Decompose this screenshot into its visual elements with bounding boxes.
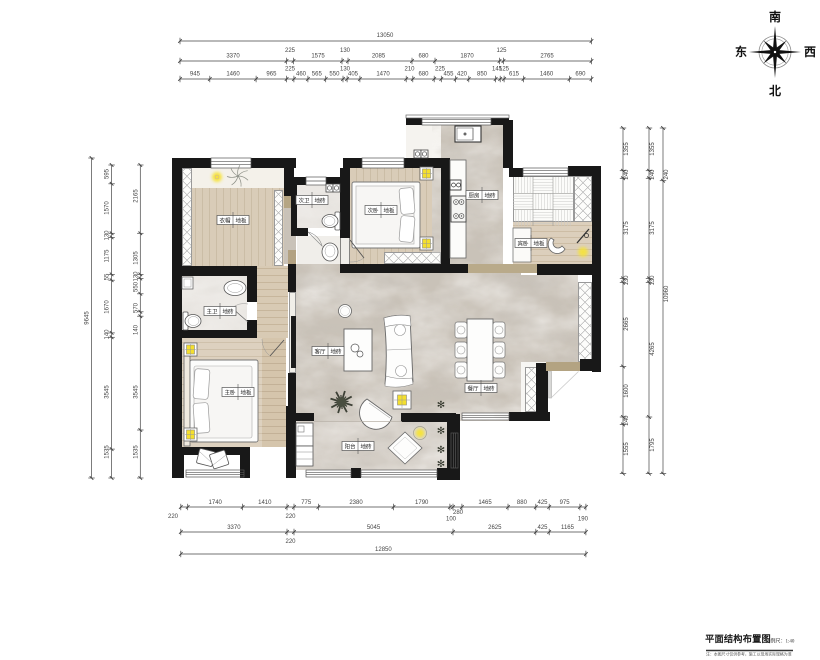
svg-text:550: 550: [133, 281, 139, 292]
svg-text:1175: 1175: [105, 249, 111, 263]
svg-text:主卧: 主卧: [224, 388, 236, 396]
svg-text:220: 220: [285, 514, 296, 520]
svg-text:100: 100: [446, 517, 457, 523]
svg-text:130: 130: [105, 230, 111, 241]
svg-text:460: 460: [296, 72, 307, 78]
svg-text:3370: 3370: [226, 54, 240, 60]
svg-text:北: 北: [769, 83, 781, 98]
svg-text:130: 130: [133, 271, 139, 282]
svg-text:550: 550: [329, 72, 340, 78]
svg-text:4265: 4265: [650, 342, 656, 356]
svg-text:客厅: 客厅: [314, 347, 326, 355]
svg-text:690: 690: [575, 72, 586, 78]
svg-text:地板: 地板: [240, 388, 252, 396]
svg-text:140: 140: [105, 329, 111, 340]
svg-text:12850: 12850: [375, 547, 392, 553]
svg-text:1570: 1570: [105, 201, 111, 215]
svg-text:55: 55: [105, 273, 111, 280]
svg-text:地砖: 地砖: [484, 191, 496, 199]
svg-text:13050: 13050: [377, 33, 394, 39]
svg-text:1410: 1410: [258, 500, 272, 506]
svg-text:✻: ✻: [437, 400, 445, 411]
svg-text:425: 425: [537, 500, 548, 506]
svg-text:280: 280: [453, 510, 464, 516]
svg-text:225: 225: [285, 67, 296, 73]
svg-text:2665: 2665: [624, 317, 630, 331]
svg-text:地砖: 地砖: [222, 307, 234, 315]
svg-text:455: 455: [443, 72, 454, 78]
svg-text:880: 880: [517, 500, 528, 506]
svg-text:地砖: 地砖: [360, 442, 372, 450]
svg-text:190: 190: [578, 517, 589, 523]
svg-text:1535: 1535: [133, 445, 139, 459]
svg-text:宾卧: 宾卧: [517, 239, 529, 247]
svg-text:地砖: 地砖: [483, 384, 495, 392]
svg-text:140: 140: [133, 324, 139, 335]
svg-text:1305: 1305: [133, 251, 139, 265]
svg-text:1555: 1555: [624, 442, 630, 456]
svg-text:680: 680: [418, 72, 429, 78]
svg-text:220: 220: [285, 539, 296, 545]
svg-text:210: 210: [404, 67, 415, 73]
svg-text:1355: 1355: [650, 142, 656, 156]
svg-text:✻: ✻: [437, 459, 445, 470]
svg-text:3545: 3545: [133, 385, 139, 399]
svg-text:衣帽: 衣帽: [219, 216, 231, 224]
svg-text:130: 130: [624, 275, 630, 286]
svg-text:130: 130: [650, 275, 656, 286]
svg-text:西: 西: [804, 45, 816, 59]
svg-text:775: 775: [301, 500, 312, 506]
svg-text:阳台: 阳台: [344, 442, 356, 450]
svg-text:1535: 1535: [105, 445, 111, 459]
svg-text:130: 130: [340, 48, 351, 54]
svg-text:225: 225: [285, 48, 296, 54]
svg-text:615: 615: [509, 72, 520, 78]
svg-text:425: 425: [537, 525, 548, 531]
svg-text:565: 565: [312, 72, 323, 78]
svg-text:240: 240: [664, 169, 670, 180]
svg-text:3175: 3175: [650, 221, 656, 235]
svg-text:东: 东: [735, 44, 747, 59]
svg-text:1870: 1870: [460, 54, 474, 60]
svg-text:次卧: 次卧: [367, 206, 379, 214]
svg-text:1355: 1355: [624, 142, 630, 156]
svg-text:1470: 1470: [376, 72, 390, 78]
svg-text:570: 570: [133, 302, 139, 313]
svg-text:✻: ✻: [437, 426, 445, 437]
svg-text:1670: 1670: [105, 300, 111, 314]
svg-text:地板: 地板: [383, 206, 395, 214]
svg-text:1165: 1165: [561, 525, 575, 531]
svg-text:2765: 2765: [540, 54, 554, 60]
svg-text:地砖: 地砖: [314, 196, 326, 204]
svg-text:地砖: 地砖: [330, 347, 342, 355]
svg-text:680: 680: [418, 54, 429, 60]
svg-text:405: 405: [348, 72, 359, 78]
svg-text:平面结构布置图: 平面结构布置图: [705, 633, 771, 644]
svg-text:2165: 2165: [133, 189, 139, 203]
svg-text:1575: 1575: [311, 54, 325, 60]
svg-text:1795: 1795: [650, 438, 656, 452]
svg-text:3370: 3370: [227, 525, 241, 531]
svg-text:2625: 2625: [488, 525, 502, 531]
svg-text:220: 220: [168, 514, 179, 520]
svg-text:1460: 1460: [226, 72, 240, 78]
svg-text:1460: 1460: [540, 72, 554, 78]
svg-text:注：本图尺寸仅供参考，施工以现场实际规格为准: 注：本图尺寸仅供参考，施工以现场实际规格为准: [706, 652, 792, 657]
svg-text:5045: 5045: [367, 525, 381, 531]
svg-text:3175: 3175: [624, 221, 630, 235]
svg-text:240: 240: [624, 169, 630, 180]
svg-text:1740: 1740: [209, 500, 223, 506]
svg-text:2085: 2085: [372, 54, 386, 60]
svg-text:比例尺：1:40: 比例尺：1:40: [766, 638, 795, 645]
svg-text:主卫: 主卫: [206, 307, 218, 315]
svg-text:2380: 2380: [349, 500, 363, 506]
svg-text:✻: ✻: [437, 445, 445, 456]
svg-text:餐厅: 餐厅: [467, 384, 479, 392]
svg-text:240: 240: [624, 415, 630, 426]
svg-text:1465: 1465: [478, 500, 492, 506]
svg-text:945: 945: [190, 72, 201, 78]
svg-text:地板: 地板: [235, 216, 247, 224]
svg-text:125: 125: [496, 48, 507, 54]
svg-text:10960: 10960: [664, 285, 670, 302]
svg-text:850: 850: [477, 72, 488, 78]
svg-text:南: 南: [769, 9, 781, 24]
svg-text:厨房: 厨房: [468, 191, 480, 199]
svg-text:420: 420: [457, 72, 468, 78]
svg-text:地板: 地板: [533, 239, 545, 247]
svg-text:3545: 3545: [105, 385, 111, 399]
svg-text:9645: 9645: [85, 311, 91, 325]
svg-text:240: 240: [650, 169, 656, 180]
svg-text:595: 595: [105, 168, 111, 179]
svg-text:975: 975: [560, 500, 571, 506]
svg-text:次卫: 次卫: [298, 196, 310, 204]
svg-text:1790: 1790: [415, 500, 429, 506]
svg-text:1600: 1600: [624, 384, 630, 398]
svg-text:965: 965: [266, 72, 277, 78]
